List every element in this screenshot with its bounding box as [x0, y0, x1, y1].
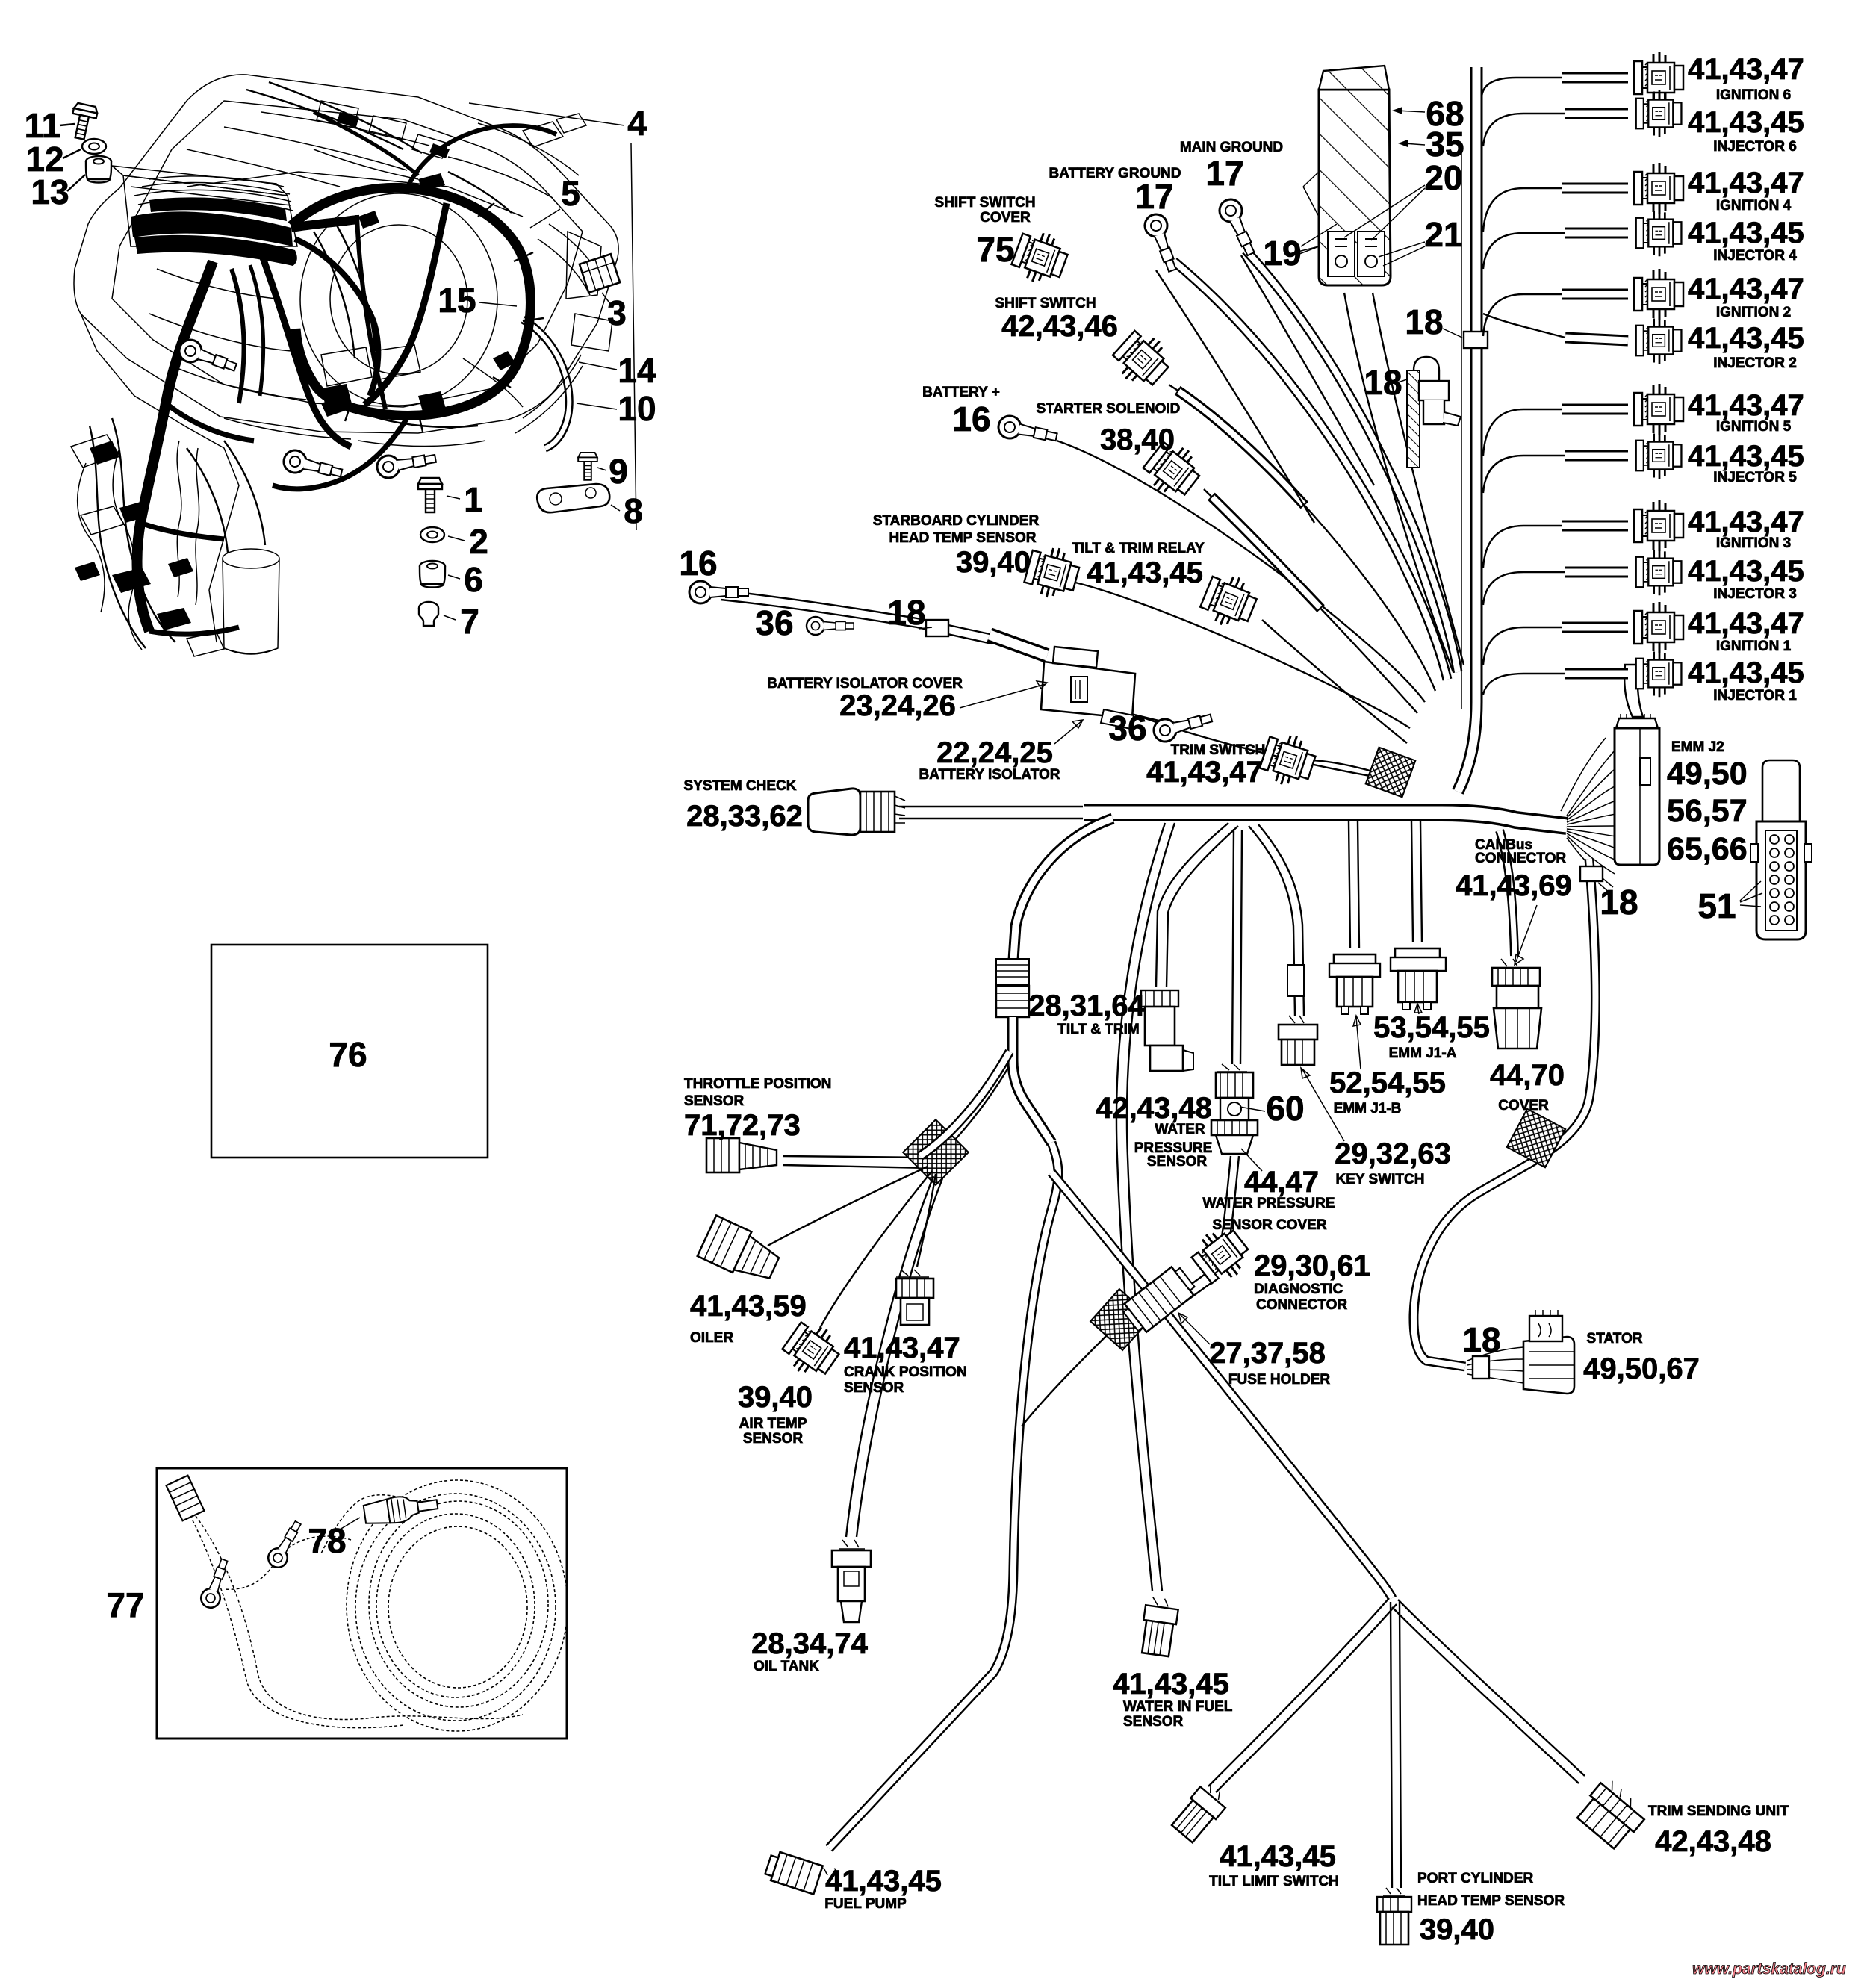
svg-text:IGNITION 3: IGNITION 3	[1716, 535, 1791, 551]
svg-text:60: 60	[1266, 1089, 1304, 1128]
svg-text:TILT LIMIT SWITCH: TILT LIMIT SWITCH	[1209, 1874, 1339, 1889]
svg-text:PORT CYLINDER: PORT CYLINDER	[1417, 1871, 1533, 1886]
svg-text:IGNITION 1: IGNITION 1	[1716, 639, 1792, 654]
svg-text:41,43,47: 41,43,47	[1688, 389, 1804, 422]
svg-text:41,43,69: 41,43,69	[1456, 869, 1572, 902]
svg-text:41,43,45: 41,43,45	[1688, 656, 1804, 689]
svg-text:THROTTLE POSITION: THROTTLE POSITION	[684, 1076, 831, 1092]
svg-text:41,43,45: 41,43,45	[1087, 556, 1203, 589]
svg-text:76: 76	[329, 1035, 367, 1074]
svg-text:75: 75	[976, 230, 1014, 269]
svg-text:42,43,46: 42,43,46	[1001, 310, 1118, 343]
svg-text:WATER: WATER	[1155, 1122, 1205, 1137]
svg-text:10: 10	[618, 389, 656, 428]
svg-text:TILT & TRIM RELAY: TILT & TRIM RELAY	[1072, 541, 1205, 556]
svg-text:18: 18	[1600, 883, 1638, 922]
svg-text:INJECTOR 3: INJECTOR 3	[1713, 586, 1797, 602]
svg-text:SENSOR: SENSOR	[844, 1380, 904, 1396]
svg-text:41,43,47: 41,43,47	[1688, 273, 1804, 305]
svg-text:18: 18	[1364, 363, 1402, 402]
svg-text:CRANK POSITION: CRANK POSITION	[844, 1364, 967, 1380]
svg-text:SYSTEM CHECK: SYSTEM CHECK	[684, 778, 797, 794]
svg-text:41,43,45: 41,43,45	[1688, 440, 1804, 473]
svg-text:42,43,48: 42,43,48	[1096, 1092, 1212, 1125]
svg-text:78: 78	[308, 1521, 346, 1560]
svg-text:41,43,45: 41,43,45	[1688, 322, 1804, 355]
svg-text:41,43,45: 41,43,45	[1220, 1840, 1336, 1873]
svg-text:SENSOR COVER: SENSOR COVER	[1212, 1217, 1326, 1233]
svg-text:4: 4	[627, 104, 647, 143]
svg-text:17: 17	[1205, 154, 1243, 193]
svg-text:IGNITION 2: IGNITION 2	[1716, 305, 1791, 320]
svg-text:38,40: 38,40	[1100, 423, 1175, 456]
svg-text:41,43,45: 41,43,45	[825, 1865, 942, 1898]
svg-text:44,47: 44,47	[1244, 1166, 1319, 1199]
svg-text:41,43,47: 41,43,47	[1688, 53, 1804, 86]
svg-text:COVER: COVER	[1498, 1098, 1549, 1113]
svg-text:20: 20	[1424, 158, 1462, 197]
svg-text:www.partskatalog.ru: www.partskatalog.ru	[1692, 1960, 1846, 1978]
svg-text:INJECTOR 2: INJECTOR 2	[1713, 355, 1797, 371]
svg-text:41,43,47: 41,43,47	[1688, 167, 1804, 199]
svg-text:INJECTOR 1: INJECTOR 1	[1713, 688, 1797, 703]
svg-text:56,57: 56,57	[1667, 793, 1748, 829]
svg-text:1: 1	[464, 480, 483, 519]
svg-text:5: 5	[561, 174, 580, 213]
svg-text:IGNITION 5: IGNITION 5	[1716, 419, 1792, 435]
svg-text:41,43,45: 41,43,45	[1688, 555, 1804, 588]
svg-text:44,70: 44,70	[1490, 1059, 1565, 1092]
svg-text:14: 14	[618, 351, 656, 390]
svg-text:IGNITION 6: IGNITION 6	[1716, 87, 1791, 103]
svg-text:STARBOARD CYLINDER: STARBOARD CYLINDER	[873, 513, 1040, 529]
svg-text:TRIM SENDING UNIT: TRIM SENDING UNIT	[1648, 1804, 1789, 1819]
svg-text:MAIN GROUND: MAIN GROUND	[1180, 140, 1283, 155]
svg-text:23,24,26: 23,24,26	[839, 689, 956, 722]
svg-text:17: 17	[1135, 177, 1173, 216]
svg-text:49,50: 49,50	[1667, 756, 1748, 792]
svg-text:WATER IN FUEL: WATER IN FUEL	[1123, 1699, 1233, 1715]
svg-text:39,40: 39,40	[956, 546, 1031, 579]
svg-text:28,33,62: 28,33,62	[686, 800, 803, 833]
svg-text:51: 51	[1697, 886, 1736, 925]
svg-text:3: 3	[607, 293, 627, 332]
svg-text:SHIFT SWITCH: SHIFT SWITCH	[995, 296, 1096, 311]
svg-text:36: 36	[1108, 709, 1146, 748]
svg-text:41,43,45: 41,43,45	[1113, 1668, 1229, 1700]
svg-text:18: 18	[1405, 302, 1443, 341]
svg-text:16: 16	[679, 544, 717, 583]
svg-text:49,50,67: 49,50,67	[1583, 1352, 1700, 1385]
svg-text:EMM J1-A: EMM J1-A	[1389, 1046, 1457, 1061]
svg-text:FUSE HOLDER: FUSE HOLDER	[1228, 1372, 1330, 1388]
svg-text:CONNECTOR: CONNECTOR	[1256, 1297, 1347, 1313]
svg-text:15: 15	[438, 281, 476, 320]
svg-text:28,34,74: 28,34,74	[751, 1627, 868, 1660]
svg-text:42,43,48: 42,43,48	[1655, 1825, 1771, 1858]
svg-text:COVER: COVER	[980, 210, 1031, 226]
svg-text:6: 6	[464, 560, 483, 599]
svg-text:28,31,64: 28,31,64	[1028, 990, 1145, 1022]
svg-text:16: 16	[952, 400, 990, 438]
svg-text:HEAD TEMP SENSOR: HEAD TEMP SENSOR	[1417, 1893, 1565, 1909]
svg-text:OIL TANK: OIL TANK	[754, 1659, 819, 1674]
svg-text:EMM J2: EMM J2	[1671, 739, 1724, 755]
svg-text:41,43,59: 41,43,59	[690, 1290, 807, 1323]
svg-text:29,32,63: 29,32,63	[1335, 1137, 1451, 1170]
svg-text:7: 7	[460, 602, 479, 641]
svg-text:21: 21	[1424, 215, 1462, 254]
svg-text:DIAGNOSTIC: DIAGNOSTIC	[1254, 1282, 1343, 1297]
svg-text:52,54,55: 52,54,55	[1329, 1066, 1446, 1099]
svg-text:EMM J1-B: EMM J1-B	[1334, 1101, 1402, 1116]
svg-text:18: 18	[887, 593, 925, 632]
svg-text:HEAD TEMP SENSOR: HEAD TEMP SENSOR	[889, 530, 1036, 546]
svg-text:41,43,47: 41,43,47	[1146, 756, 1263, 789]
svg-text:65,66: 65,66	[1667, 831, 1748, 867]
svg-text:2: 2	[469, 522, 488, 561]
svg-text:SENSOR: SENSOR	[743, 1431, 804, 1447]
svg-text:36: 36	[755, 603, 793, 642]
svg-text:STARTER SOLENOID: STARTER SOLENOID	[1037, 401, 1181, 417]
svg-text:8: 8	[624, 491, 643, 530]
svg-text:77: 77	[106, 1585, 144, 1624]
svg-text:STATOR: STATOR	[1587, 1331, 1643, 1346]
svg-text:19: 19	[1263, 234, 1301, 273]
svg-text:INJECTOR 5: INJECTOR 5	[1713, 470, 1797, 485]
svg-text:71,72,73: 71,72,73	[684, 1109, 801, 1142]
svg-text:41,43,47: 41,43,47	[844, 1332, 960, 1364]
svg-text:41,43,45: 41,43,45	[1688, 106, 1804, 139]
svg-text:41,43,47: 41,43,47	[1688, 506, 1804, 538]
svg-text:SENSOR: SENSOR	[684, 1093, 745, 1109]
svg-text:9: 9	[609, 452, 628, 491]
svg-text:SENSOR: SENSOR	[1123, 1714, 1184, 1730]
svg-text:IGNITION 4: IGNITION 4	[1716, 198, 1792, 214]
svg-text:29,30,61: 29,30,61	[1254, 1249, 1370, 1282]
svg-text:AIR TEMP: AIR TEMP	[739, 1416, 807, 1432]
svg-text:18: 18	[1462, 1320, 1500, 1359]
svg-text:39,40: 39,40	[1420, 1913, 1494, 1946]
svg-text:WATER PRESSURE: WATER PRESSURE	[1202, 1196, 1335, 1211]
svg-text:CONNECTOR: CONNECTOR	[1475, 851, 1566, 866]
svg-text:KEY SWITCH: KEY SWITCH	[1336, 1172, 1425, 1187]
svg-text:SHIFT SWITCH: SHIFT SWITCH	[934, 195, 1035, 211]
svg-text:39,40: 39,40	[738, 1381, 813, 1414]
svg-text:22,24,25: 22,24,25	[936, 736, 1053, 769]
svg-text:13: 13	[31, 173, 69, 211]
svg-text:SENSOR: SENSOR	[1147, 1154, 1208, 1169]
svg-text:41,43,47: 41,43,47	[1688, 607, 1804, 640]
svg-text:INJECTOR 6: INJECTOR 6	[1713, 139, 1797, 155]
svg-text:FUEL PUMP: FUEL PUMP	[824, 1896, 907, 1912]
svg-text:BATTERY +: BATTERY +	[922, 385, 1000, 400]
svg-text:OILER: OILER	[690, 1330, 733, 1346]
svg-text:BATTERY ISOLATOR: BATTERY ISOLATOR	[919, 767, 1060, 783]
svg-text:41,43,45: 41,43,45	[1688, 217, 1804, 249]
svg-text:53,54,55: 53,54,55	[1373, 1011, 1490, 1044]
svg-text:27,37,58: 27,37,58	[1209, 1337, 1326, 1370]
svg-text:TILT & TRIM: TILT & TRIM	[1057, 1022, 1139, 1037]
svg-text:INJECTOR 4: INJECTOR 4	[1713, 248, 1797, 264]
